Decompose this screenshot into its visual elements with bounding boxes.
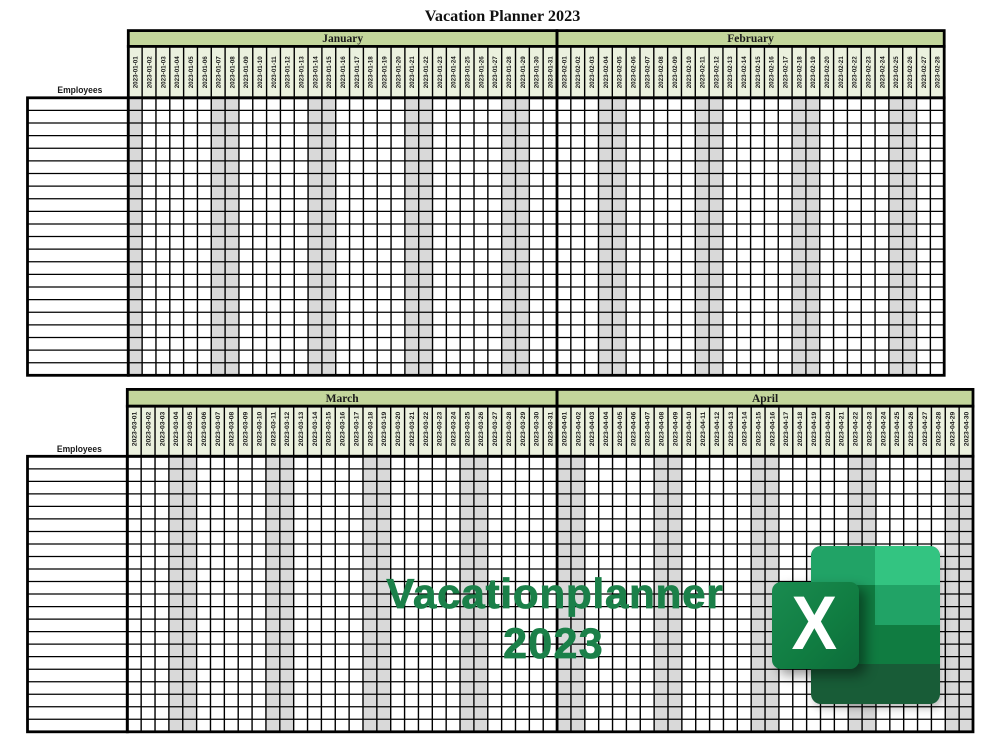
svg-text:2023-03-22: 2023-03-22 bbox=[423, 411, 430, 446]
svg-text:2023-03-03: 2023-03-03 bbox=[159, 411, 166, 446]
svg-text:2023-02-05: 2023-02-05 bbox=[617, 56, 624, 88]
svg-text:2023-04-21: 2023-04-21 bbox=[839, 411, 846, 446]
svg-text:2023-03-16: 2023-03-16 bbox=[340, 411, 347, 446]
svg-text:2023-03-29: 2023-03-29 bbox=[520, 411, 527, 446]
svg-text:2023-03-08: 2023-03-08 bbox=[229, 411, 236, 446]
svg-text:2023-04-24: 2023-04-24 bbox=[880, 411, 887, 446]
svg-text:2023-04-09: 2023-04-09 bbox=[672, 411, 679, 446]
svg-text:2023-03-07: 2023-03-07 bbox=[215, 411, 222, 446]
svg-text:2023-02-02: 2023-02-02 bbox=[575, 56, 582, 88]
svg-text:2023-01-14: 2023-01-14 bbox=[312, 56, 319, 88]
svg-text:2023-03-10: 2023-03-10 bbox=[256, 411, 263, 446]
svg-text:2023-04-17: 2023-04-17 bbox=[783, 411, 790, 446]
svg-text:2023-02-07: 2023-02-07 bbox=[644, 56, 651, 88]
svg-text:2023-04-13: 2023-04-13 bbox=[728, 411, 735, 446]
svg-text:2023-02-14: 2023-02-14 bbox=[741, 56, 748, 88]
svg-text:2023-04-11: 2023-04-11 bbox=[700, 411, 707, 446]
svg-text:2023-01-15: 2023-01-15 bbox=[326, 56, 333, 88]
svg-text:2023-01-18: 2023-01-18 bbox=[368, 56, 375, 88]
svg-text:2023-02-08: 2023-02-08 bbox=[658, 56, 665, 88]
svg-text:2023-03-17: 2023-03-17 bbox=[353, 411, 360, 446]
svg-text:2023-04-30: 2023-04-30 bbox=[963, 411, 970, 446]
svg-text:2023-02-26: 2023-02-26 bbox=[907, 56, 914, 88]
svg-text:2023-03-12: 2023-03-12 bbox=[284, 411, 291, 446]
svg-text:2023-03-26: 2023-03-26 bbox=[478, 411, 485, 446]
svg-text:January: January bbox=[322, 33, 363, 45]
svg-text:2023-01-12: 2023-01-12 bbox=[285, 56, 292, 88]
svg-text:2023-01-21: 2023-01-21 bbox=[409, 56, 416, 88]
svg-text:March: March bbox=[326, 393, 360, 405]
svg-text:2023-03-04: 2023-03-04 bbox=[173, 411, 180, 446]
svg-text:2023-03-06: 2023-03-06 bbox=[201, 411, 208, 446]
svg-text:2023-04-06: 2023-04-06 bbox=[631, 411, 638, 446]
svg-text:2023-01-17: 2023-01-17 bbox=[354, 56, 361, 88]
svg-text:2023-01-09: 2023-01-09 bbox=[243, 56, 250, 88]
svg-text:2023-04-05: 2023-04-05 bbox=[617, 411, 624, 446]
svg-text:2023-01-04: 2023-01-04 bbox=[174, 56, 181, 88]
svg-text:2023-02-13: 2023-02-13 bbox=[727, 56, 734, 88]
svg-text:2023-03-24: 2023-03-24 bbox=[451, 411, 458, 446]
svg-text:April: April bbox=[752, 393, 778, 405]
svg-text:2023-04-12: 2023-04-12 bbox=[714, 411, 721, 446]
svg-text:2023-04-18: 2023-04-18 bbox=[797, 411, 804, 446]
svg-text:2023-03-19: 2023-03-19 bbox=[381, 411, 388, 446]
svg-text:2023-02-15: 2023-02-15 bbox=[755, 56, 762, 88]
svg-text:2023-03-11: 2023-03-11 bbox=[270, 411, 277, 446]
svg-text:2023-03-20: 2023-03-20 bbox=[395, 411, 402, 446]
svg-text:2023-04-16: 2023-04-16 bbox=[769, 411, 776, 446]
svg-text:February: February bbox=[727, 33, 774, 45]
svg-text:2023-01-20: 2023-01-20 bbox=[395, 56, 402, 88]
svg-text:2023-02-03: 2023-02-03 bbox=[589, 56, 596, 88]
svg-text:2023-02-16: 2023-02-16 bbox=[769, 56, 776, 88]
svg-text:2023-04-04: 2023-04-04 bbox=[603, 411, 610, 446]
svg-text:2023-04-10: 2023-04-10 bbox=[686, 411, 693, 446]
svg-text:2023-01-19: 2023-01-19 bbox=[382, 56, 389, 88]
svg-text:2023-01-02: 2023-01-02 bbox=[146, 56, 153, 88]
svg-text:2023-03-21: 2023-03-21 bbox=[409, 411, 416, 446]
svg-text:2023-01-23: 2023-01-23 bbox=[437, 56, 444, 88]
svg-text:2023-04-07: 2023-04-07 bbox=[645, 411, 652, 446]
svg-text:2023-02-19: 2023-02-19 bbox=[810, 56, 817, 88]
svg-text:2023-01-25: 2023-01-25 bbox=[465, 56, 472, 88]
svg-text:2023-03-30: 2023-03-30 bbox=[534, 411, 541, 446]
svg-text:2023-03-09: 2023-03-09 bbox=[243, 411, 250, 446]
svg-text:2023-01-29: 2023-01-29 bbox=[520, 56, 527, 88]
svg-text:2023-01-26: 2023-01-26 bbox=[478, 56, 485, 88]
svg-text:2023-02-25: 2023-02-25 bbox=[893, 56, 900, 88]
svg-text:2023-01-05: 2023-01-05 bbox=[188, 56, 195, 88]
svg-text:2023-02-04: 2023-02-04 bbox=[603, 56, 610, 88]
svg-text:2023-01-11: 2023-01-11 bbox=[271, 56, 278, 88]
svg-text:2023-01-03: 2023-01-03 bbox=[160, 56, 167, 88]
svg-text:2023-02-21: 2023-02-21 bbox=[838, 56, 845, 88]
svg-text:2023-03-27: 2023-03-27 bbox=[492, 411, 499, 446]
svg-text:2023-04-27: 2023-04-27 bbox=[922, 411, 929, 446]
svg-text:2023-04-23: 2023-04-23 bbox=[866, 411, 873, 446]
svg-text:2023-01-31: 2023-01-31 bbox=[547, 56, 554, 88]
svg-text:2023-03-23: 2023-03-23 bbox=[437, 411, 444, 446]
svg-text:2023-04-26: 2023-04-26 bbox=[908, 411, 915, 446]
svg-text:2023-04-22: 2023-04-22 bbox=[853, 411, 860, 446]
svg-text:2023-04-29: 2023-04-29 bbox=[950, 411, 957, 446]
svg-text:2023-03-01: 2023-03-01 bbox=[132, 411, 139, 446]
svg-text:2023-03-25: 2023-03-25 bbox=[464, 411, 471, 446]
svg-text:2023-02-24: 2023-02-24 bbox=[879, 56, 886, 88]
svg-text:2023-03-18: 2023-03-18 bbox=[367, 411, 374, 446]
svg-text:2023-02-23: 2023-02-23 bbox=[866, 56, 873, 88]
svg-text:2023-04-08: 2023-04-08 bbox=[658, 411, 665, 446]
svg-text:2023-02-18: 2023-02-18 bbox=[796, 56, 803, 88]
svg-text:2023-04-20: 2023-04-20 bbox=[825, 411, 832, 446]
svg-text:2023-01-13: 2023-01-13 bbox=[299, 56, 306, 88]
svg-text:2023-01-28: 2023-01-28 bbox=[506, 56, 513, 88]
svg-text:2023-02-28: 2023-02-28 bbox=[935, 56, 942, 88]
svg-text:2023-03-05: 2023-03-05 bbox=[187, 411, 194, 446]
svg-text:2023-04-15: 2023-04-15 bbox=[756, 411, 763, 446]
svg-text:2023-02-09: 2023-02-09 bbox=[672, 56, 679, 88]
svg-text:2023-02-22: 2023-02-22 bbox=[852, 56, 859, 88]
svg-text:Employees: Employees bbox=[57, 85, 102, 96]
svg-text:2023-01-08: 2023-01-08 bbox=[229, 56, 236, 88]
svg-text:2023-01-01: 2023-01-01 bbox=[133, 56, 140, 88]
svg-text:2023-03-14: 2023-03-14 bbox=[312, 411, 319, 446]
svg-text:2023-03-15: 2023-03-15 bbox=[326, 411, 333, 446]
svg-text:2023-01-06: 2023-01-06 bbox=[202, 56, 209, 88]
svg-text:2023-03-13: 2023-03-13 bbox=[298, 411, 305, 446]
svg-text:2023-02-06: 2023-02-06 bbox=[630, 56, 637, 88]
svg-text:2023-01-16: 2023-01-16 bbox=[340, 56, 347, 88]
svg-text:2023-01-10: 2023-01-10 bbox=[257, 56, 264, 88]
svg-text:Employees: Employees bbox=[57, 444, 102, 455]
svg-text:2023-02-27: 2023-02-27 bbox=[921, 56, 928, 88]
svg-text:2023-03-31: 2023-03-31 bbox=[548, 411, 555, 446]
svg-text:2023-03-02: 2023-03-02 bbox=[146, 411, 153, 446]
svg-text:2023-01-07: 2023-01-07 bbox=[216, 56, 223, 88]
svg-text:2023-03-28: 2023-03-28 bbox=[506, 411, 513, 446]
svg-text:2023-01-22: 2023-01-22 bbox=[423, 56, 430, 88]
svg-text:2023-01-27: 2023-01-27 bbox=[492, 56, 499, 88]
svg-text:2023-04-28: 2023-04-28 bbox=[936, 411, 943, 446]
svg-text:2023-01-30: 2023-01-30 bbox=[534, 56, 541, 88]
svg-text:2023-02-10: 2023-02-10 bbox=[686, 56, 693, 88]
svg-text:2023-02-11: 2023-02-11 bbox=[700, 56, 707, 88]
svg-text:2023-04-25: 2023-04-25 bbox=[894, 411, 901, 446]
svg-text:2023-04-14: 2023-04-14 bbox=[742, 411, 749, 446]
svg-text:2023-02-20: 2023-02-20 bbox=[824, 56, 831, 88]
svg-text:2023-04-19: 2023-04-19 bbox=[811, 411, 818, 446]
svg-text:2023-02-17: 2023-02-17 bbox=[783, 56, 790, 88]
svg-text:2023-04-01: 2023-04-01 bbox=[561, 411, 568, 446]
svg-text:2023-04-02: 2023-04-02 bbox=[575, 411, 582, 446]
svg-text:2023-01-24: 2023-01-24 bbox=[451, 56, 458, 88]
svg-text:2023-02-12: 2023-02-12 bbox=[713, 56, 720, 88]
svg-text:2023-02-01: 2023-02-01 bbox=[561, 56, 568, 88]
svg-text:2023-04-03: 2023-04-03 bbox=[589, 411, 596, 446]
